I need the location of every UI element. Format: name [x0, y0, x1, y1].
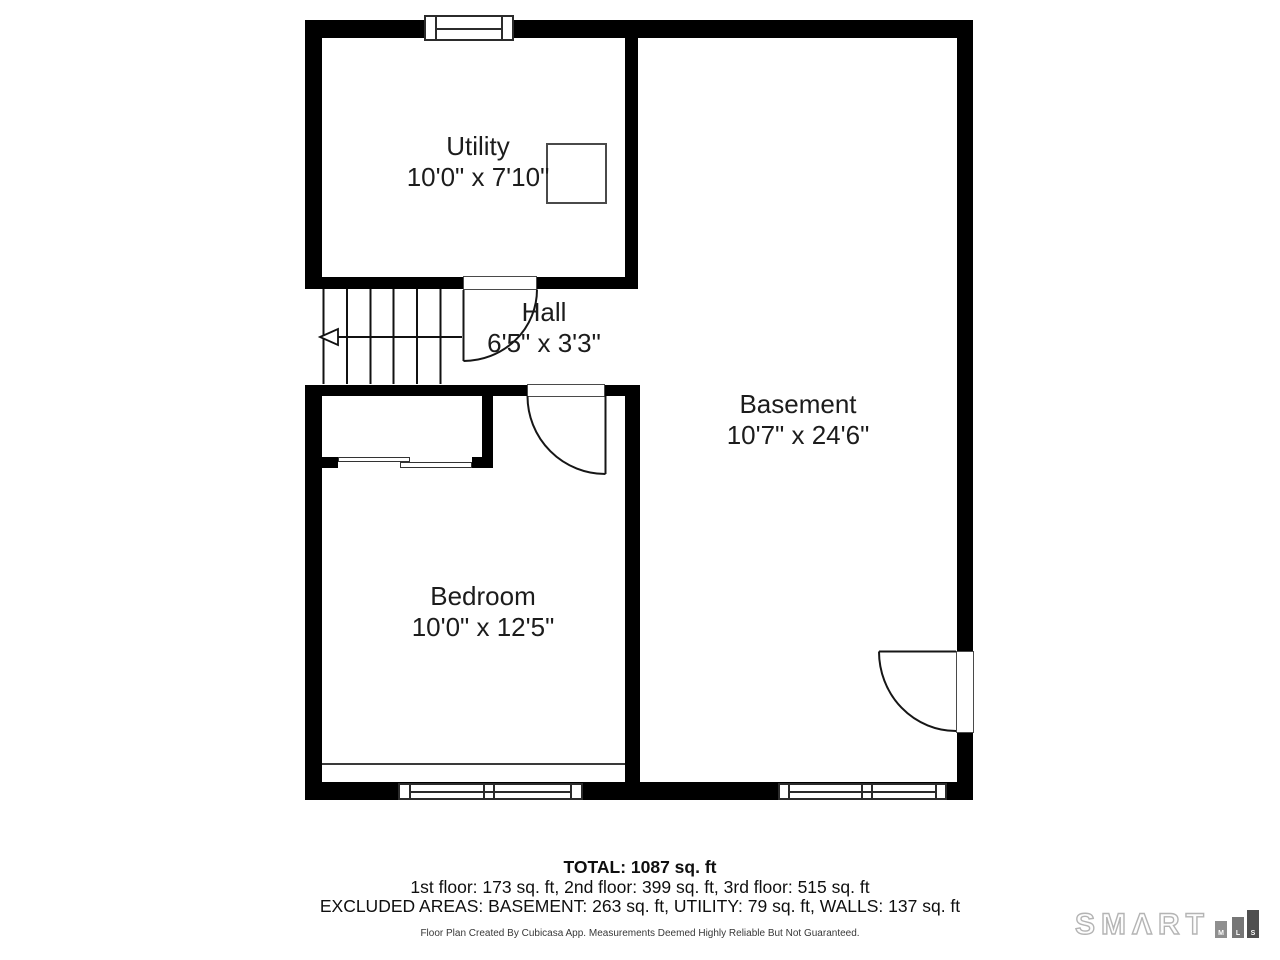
bedroom-inner-wall-line — [322, 763, 625, 765]
floor-areas-text: 1st floor: 173 sq. ft, 2nd floor: 399 sq… — [0, 878, 1280, 898]
closet-sliding-door-panel — [400, 462, 472, 468]
wall-closet-stub-right — [472, 457, 493, 468]
bedroom-door-arc — [528, 396, 606, 474]
mls-bar-m: M — [1215, 921, 1227, 938]
basement-exterior-door-threshold — [956, 651, 974, 733]
room-dimensions: 6'5" x 3'3" — [394, 328, 694, 359]
bedroom-door-threshold — [527, 384, 605, 397]
wall-left-lower — [305, 385, 322, 800]
smartmls-logo: SMΛRT M L S — [1075, 906, 1275, 950]
room-dimensions: 10'7" x 24'6" — [648, 420, 948, 451]
utility-window — [424, 15, 514, 41]
wall-right-upper — [957, 20, 973, 651]
total-area-text: TOTAL: 1087 sq. ft — [0, 858, 1280, 878]
wall-bedroom-top-left — [305, 385, 527, 396]
room-name: Bedroom — [333, 581, 633, 612]
room-name: Utility — [328, 131, 628, 162]
room-name: Hall — [394, 297, 694, 328]
floor-plan-canvas: Utility 10'0" x 7'10" Hall 6'5" x 3'3" B… — [0, 0, 1280, 960]
bedroom-window — [398, 783, 583, 800]
exterior-door-arc — [879, 652, 956, 732]
hall-room-label: Hall 6'5" x 3'3" — [394, 297, 694, 359]
smart-wordmark: SMΛRT — [1075, 908, 1210, 942]
bedroom-room-label: Bedroom 10'0" x 12'5" — [333, 581, 633, 643]
room-dimensions: 10'0" x 7'10" — [328, 162, 628, 193]
room-dimensions: 10'0" x 12'5" — [333, 612, 633, 643]
basement-window — [778, 783, 947, 800]
utility-room-label: Utility 10'0" x 7'10" — [328, 131, 628, 193]
basement-room-label: Basement 10'7" x 24'6" — [648, 389, 948, 451]
mls-bar-l: L — [1232, 917, 1244, 938]
wall-right-lower — [957, 733, 973, 800]
plan-linework — [0, 0, 1280, 960]
wall-top — [305, 20, 973, 38]
wall-left-upper — [305, 20, 322, 288]
wall-utility-bottom-right — [537, 277, 638, 289]
mls-bar-s: S — [1247, 910, 1259, 938]
wall-utility-bottom-left — [305, 277, 463, 289]
wall-closet-stub-left — [322, 457, 338, 468]
utility-door-threshold — [463, 276, 537, 290]
room-name: Basement — [648, 389, 948, 420]
